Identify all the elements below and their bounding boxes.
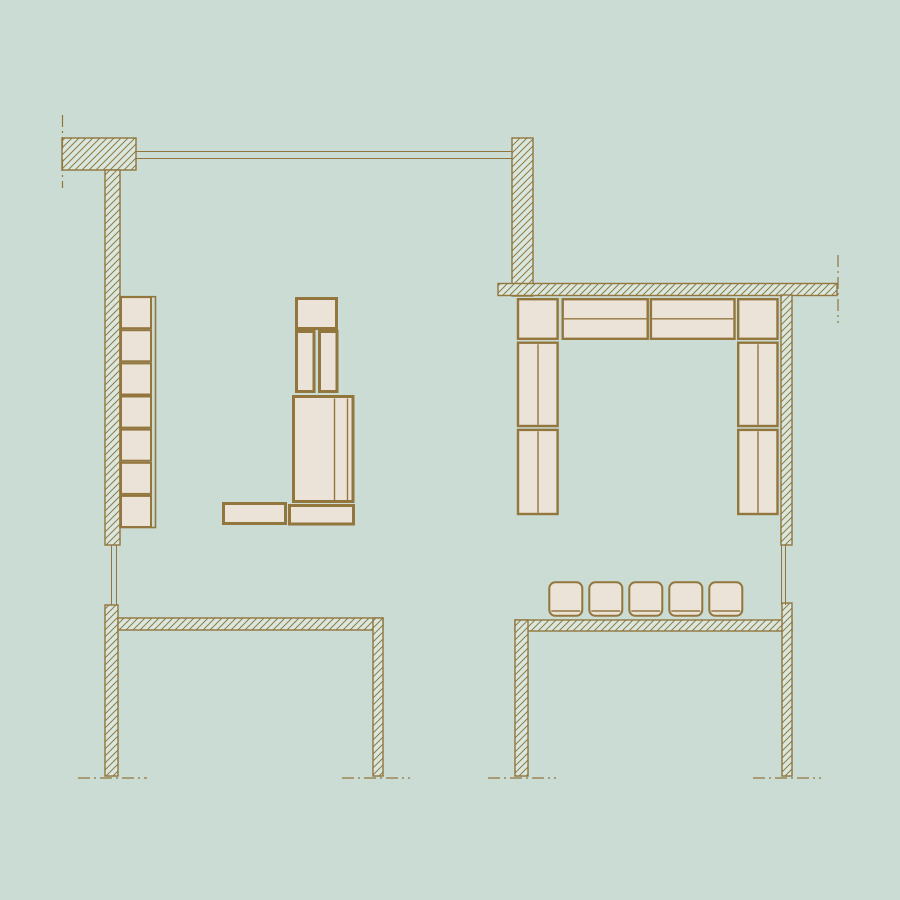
cabinet-top-box (297, 299, 337, 329)
cabinet-tall-left (297, 332, 315, 392)
shelf-cell-2 (121, 330, 151, 361)
cabinet-big-box (294, 397, 354, 502)
shelf-cell-1 (121, 297, 151, 328)
sofa-corner-right (738, 299, 777, 339)
page-background (0, 0, 900, 900)
wall-room-a-left (105, 605, 118, 776)
shelf-cell-4 (121, 397, 151, 428)
wall-room-b-left (515, 620, 528, 776)
furniture-layer (224, 299, 778, 525)
bench-left (224, 504, 286, 524)
wall-room-b-right (782, 603, 792, 776)
shelf-cell-3 (121, 363, 151, 394)
wall-room-a-right (373, 618, 383, 776)
shelf-column (120, 297, 156, 528)
wall-room-b-top (515, 620, 792, 631)
floor-plan-canvas (0, 0, 900, 900)
wall-left-upper (105, 170, 120, 545)
walls-layer (62, 138, 837, 776)
sofa-corner-left (518, 299, 558, 339)
wall-room-a-top (118, 618, 383, 630)
shelf-cell-6 (121, 463, 151, 494)
wall-right-upper (781, 295, 792, 545)
windows-layer (112, 152, 786, 606)
wall-top-center (512, 138, 533, 296)
cabinet-tall-right (320, 332, 338, 392)
shelf-cell-5 (121, 430, 151, 461)
stools-row (549, 582, 742, 616)
shelf-cell-7 (121, 496, 151, 527)
wall-right-horizontal (498, 284, 837, 296)
bench-right (290, 506, 354, 525)
wall-block-top-left (62, 138, 136, 170)
centerlines-layer (63, 115, 839, 778)
